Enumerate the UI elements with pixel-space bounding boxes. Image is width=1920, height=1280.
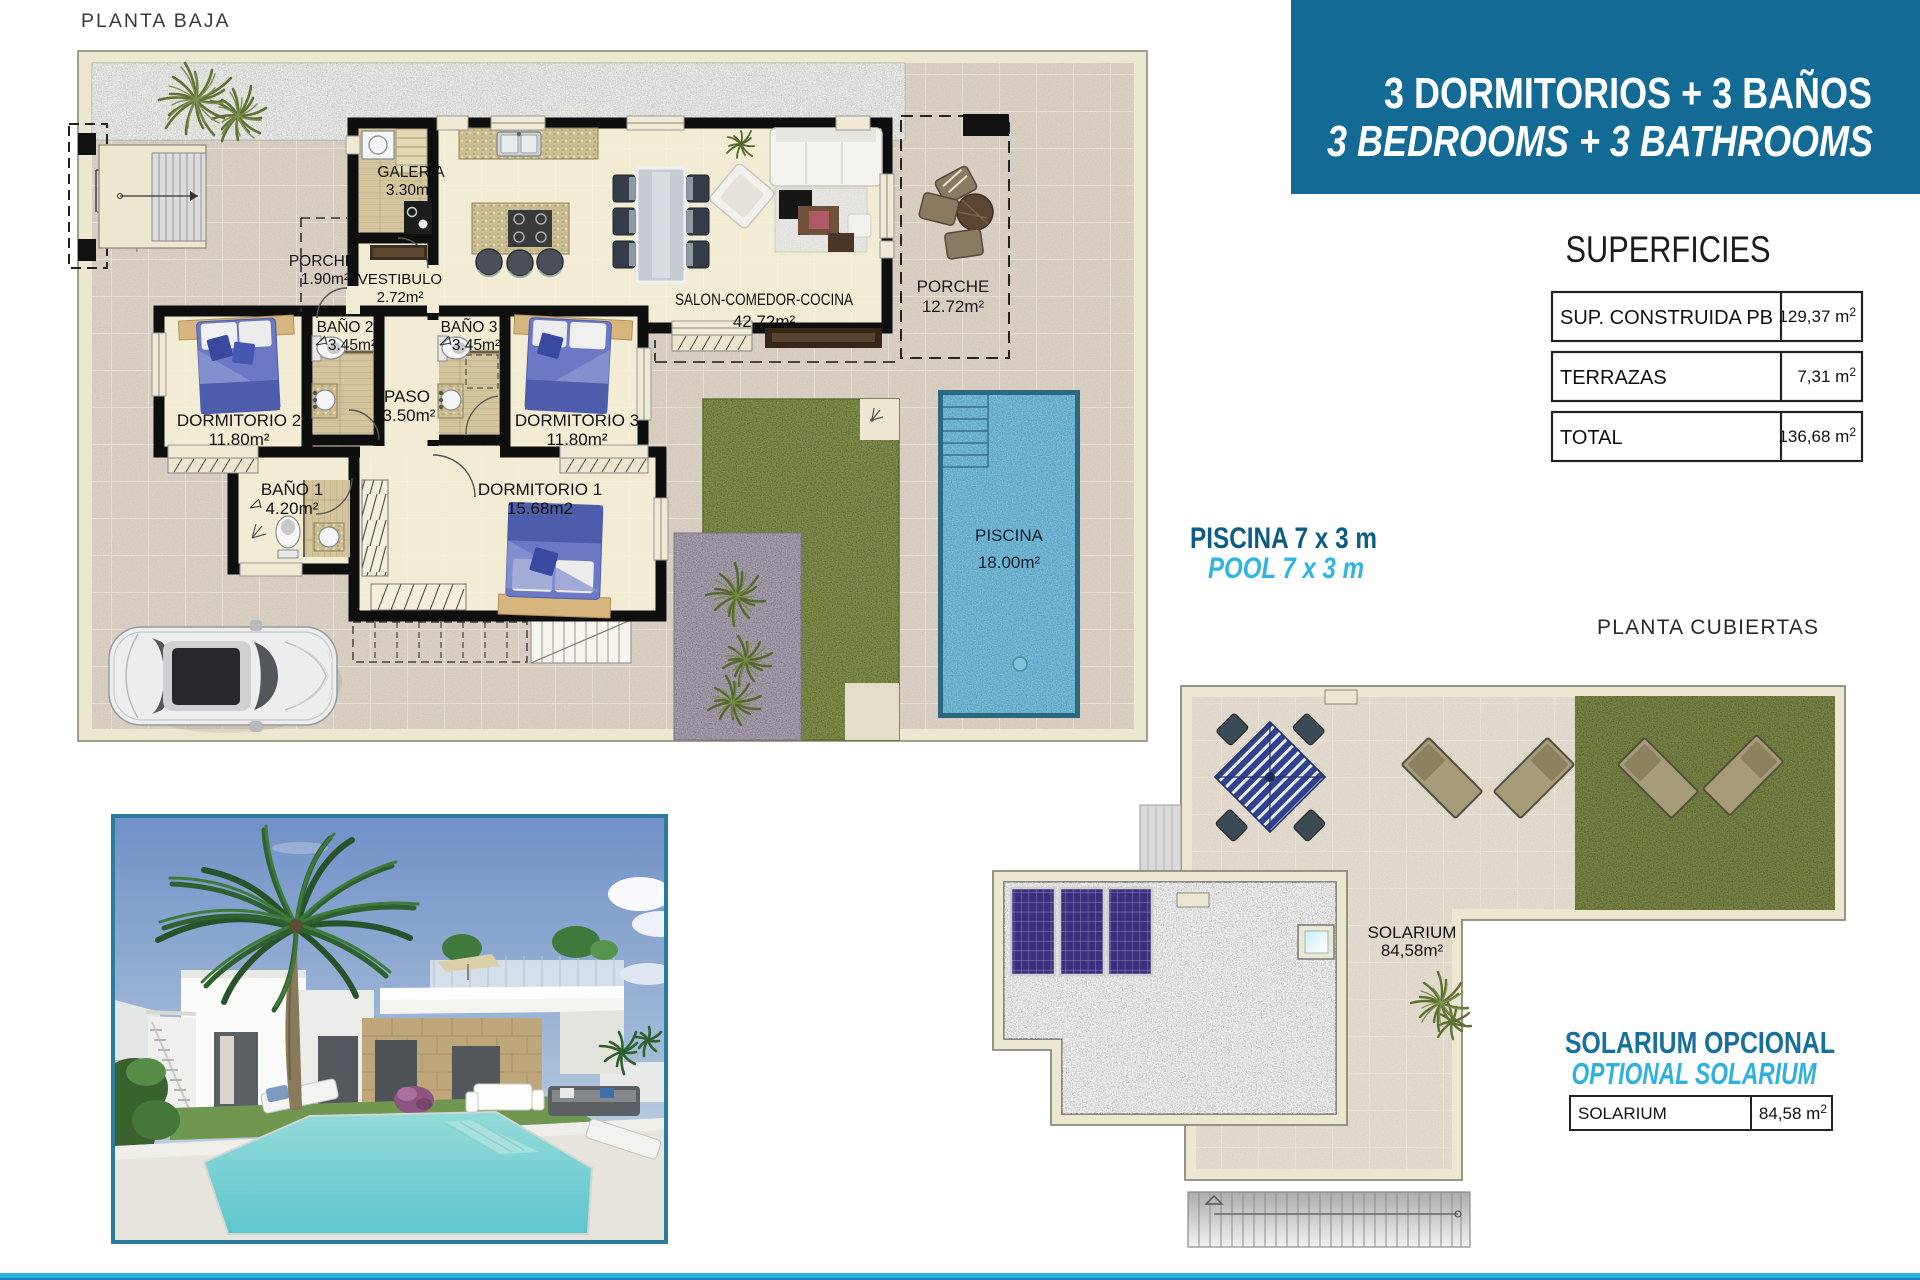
svg-text:PASO: PASO [384, 387, 430, 406]
svg-text:SOLARIUM OPCIONAL: SOLARIUM OPCIONAL [1565, 1025, 1835, 1060]
svg-text:BAÑO 1: BAÑO 1 [261, 480, 323, 499]
svg-text:PLANTA CUBIERTAS: PLANTA CUBIERTAS [1597, 616, 1819, 639]
svg-text:GALERIA: GALERIA [377, 164, 445, 181]
svg-text:SALON-COMEDOR-COCINA: SALON-COMEDOR-COCINA [675, 290, 854, 309]
svg-text:OPTIONAL SOLARIUM: OPTIONAL SOLARIUM [1572, 1056, 1818, 1091]
svg-text:11.80m²: 11.80m² [208, 430, 269, 449]
svg-text:42.72m²: 42.72m² [733, 312, 796, 331]
svg-text:1.90m²: 1.90m² [301, 271, 349, 288]
svg-text:3 BEDROOMS + 3 BATHROOMS: 3 BEDROOMS + 3 BATHROOMS [1327, 117, 1873, 166]
svg-text:VESTIBULO: VESTIBULO [358, 271, 442, 288]
svg-text:84,58m²: 84,58m² [1381, 941, 1444, 960]
svg-text:136,68 m2: 136,68 m2 [1778, 425, 1856, 446]
svg-text:PORCHE: PORCHE [917, 277, 990, 296]
svg-text:BAÑO 3: BAÑO 3 [441, 319, 498, 336]
svg-text:SOLARIUM: SOLARIUM [1578, 1104, 1667, 1123]
svg-text:7,31 m2: 7,31 m2 [1797, 365, 1856, 386]
svg-text:SUPERFICIES: SUPERFICIES [1566, 229, 1771, 270]
svg-text:3.45m²: 3.45m² [452, 337, 500, 354]
svg-text:3.50m²: 3.50m² [383, 406, 436, 425]
svg-text:PISCINA: PISCINA [975, 526, 1044, 545]
svg-text:129,37 m2: 129,37 m2 [1778, 305, 1856, 326]
svg-text:BAÑO 2: BAÑO 2 [317, 319, 374, 336]
svg-text:DORMITORIO 2: DORMITORIO 2 [177, 411, 301, 430]
svg-text:84,58 m2: 84,58 m2 [1759, 1102, 1827, 1123]
svg-text:SUP. CONSTRUIDA PB: SUP. CONSTRUIDA PB [1560, 307, 1773, 329]
svg-text:2.72m²: 2.72m² [377, 289, 424, 306]
svg-text:4.20m²: 4.20m² [266, 499, 319, 518]
svg-text:SOLARIUM: SOLARIUM [1368, 923, 1457, 942]
svg-text:PORCHE: PORCHE [289, 253, 355, 270]
svg-text:DORMITORIO 3: DORMITORIO 3 [515, 411, 639, 430]
svg-text:3 DORMITORIOS + 3 BAÑOS: 3 DORMITORIOS + 3 BAÑOS [1384, 68, 1872, 118]
svg-text:DORMITORIO 1: DORMITORIO 1 [478, 480, 602, 499]
svg-text:11.80m²: 11.80m² [546, 430, 607, 449]
svg-text:3.30m²: 3.30m² [386, 182, 434, 199]
svg-text:PLANTA BAJA: PLANTA BAJA [81, 10, 231, 32]
svg-text:TOTAL: TOTAL [1560, 427, 1623, 449]
svg-text:PISCINA 7 x 3 m: PISCINA 7 x 3 m [1190, 522, 1377, 555]
svg-text:15.68m2: 15.68m2 [507, 499, 573, 518]
svg-text:3.45m²: 3.45m² [328, 337, 376, 354]
svg-text:12.72m²: 12.72m² [922, 297, 985, 316]
svg-text:POOL 7 x 3 m: POOL 7 x 3 m [1208, 552, 1364, 585]
svg-text:TERRAZAS: TERRAZAS [1560, 367, 1667, 389]
svg-text:18.00m²: 18.00m² [978, 553, 1041, 572]
